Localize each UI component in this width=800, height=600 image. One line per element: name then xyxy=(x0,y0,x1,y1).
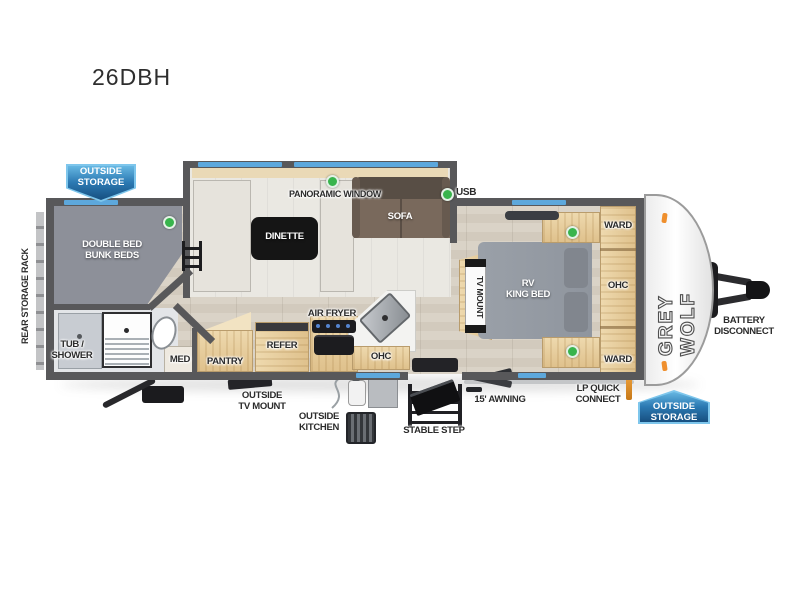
badge-face: OUTSIDE STORAGE xyxy=(640,392,708,422)
refer-label: REFER xyxy=(252,341,312,352)
battery-disconnect-label: BATTERY DISCONNECT xyxy=(702,316,786,338)
bedroom-ohc-label: OHC xyxy=(598,281,638,292)
pantry-label: PANTRY xyxy=(196,357,254,368)
outside-kitchen-panel xyxy=(368,376,398,408)
badge-front-line1: OUTSIDE xyxy=(653,402,695,413)
badge-rear-line2: STORAGE xyxy=(78,178,125,189)
cabinet-divider-1 xyxy=(600,248,636,251)
sofa-armrest-left xyxy=(352,177,360,238)
tv-mount-label: TV MOUNT xyxy=(467,268,484,326)
nightstand-top-usb xyxy=(566,226,579,239)
awning-foot xyxy=(466,387,482,392)
ward-top-label: WARD xyxy=(598,221,638,232)
kitchen-ohc-label: OHC xyxy=(351,352,411,363)
awning-label: 15' AWNING xyxy=(460,395,540,406)
bunk-ladder xyxy=(182,241,202,271)
dinette-bench-left xyxy=(193,180,251,292)
cabinet-divider-2 xyxy=(600,326,636,329)
outside-storage-badge-front: OUTSIDE STORAGE xyxy=(638,390,710,424)
outside-kitchen-line2: KITCHEN xyxy=(280,423,358,434)
nightstand-bottom-usb xyxy=(566,345,579,358)
ward-bottom-label: WARD xyxy=(598,355,638,366)
bunk-usb-indicator xyxy=(163,216,176,229)
bath-divider-wall xyxy=(54,304,150,310)
slide-window-left xyxy=(198,162,282,167)
lp-quick-connect-label: LP QUICK CONNECT xyxy=(558,384,638,406)
badge-face: OUTSIDE STORAGE xyxy=(68,166,134,200)
sofa-armrest-right xyxy=(442,177,450,238)
tub-shower-label-line2: SHOWER xyxy=(40,351,104,362)
outside-storage-badge-rear: OUTSIDE STORAGE xyxy=(66,164,136,202)
cable-line xyxy=(324,376,346,412)
hitch-coupler xyxy=(746,281,770,299)
dinette-label: DINETTE xyxy=(253,232,316,243)
water-jug xyxy=(348,380,366,406)
badge-rear-line1: OUTSIDE xyxy=(80,167,122,178)
outside-kitchen-label: OUTSIDE KITCHEN xyxy=(280,412,358,434)
panoramic-window-label: PANORAMIC WINDOW xyxy=(270,189,400,199)
grey-wolf-logo: GREY WOLF xyxy=(656,228,686,356)
badge-front-line2: STORAGE xyxy=(651,413,698,424)
bedroom-window-shade xyxy=(505,211,559,220)
entry-door-mat xyxy=(412,358,458,372)
usb-indicator xyxy=(441,188,454,201)
shower-texture xyxy=(105,338,149,365)
lp-line2: CONNECT xyxy=(558,395,638,406)
sink-faucet xyxy=(382,315,388,321)
bedroom-window xyxy=(512,200,566,205)
bottom-wall-left xyxy=(46,372,408,380)
shower-drain xyxy=(124,328,129,333)
stove-burner-2 xyxy=(326,324,330,328)
rear-entry-step xyxy=(142,386,184,403)
battery-disconnect-line2: DISCONNECT xyxy=(702,327,786,338)
rear-storage-rack-label: REAR STORAGE RACK xyxy=(20,246,34,346)
stove-burner-1 xyxy=(316,324,320,328)
page-title: 26DBH xyxy=(92,64,171,91)
panoramic-window-indicator xyxy=(326,175,339,188)
bedroom-bottom-window xyxy=(518,373,546,378)
tv-screen-cap-top xyxy=(465,259,486,267)
bunk-beds-label-line2: BUNK BEDS xyxy=(62,251,162,262)
slide-window-right xyxy=(294,162,438,167)
stable-step-label: STABLE STEP xyxy=(394,426,474,437)
king-bed-label-line2: KING BED xyxy=(488,290,568,301)
stove-burner-4 xyxy=(346,324,350,328)
air-fryer xyxy=(314,335,354,355)
bunk-beds-label: DOUBLE BED BUNK BEDS xyxy=(62,240,162,262)
king-bed-label: RV KING BED xyxy=(488,279,568,301)
bottom-wall-right xyxy=(462,372,648,380)
sofa-label: SOFA xyxy=(378,212,422,223)
air-fryer-label: AIR FRYER xyxy=(296,309,368,320)
refrigerator-top xyxy=(256,323,308,331)
stove-burner-3 xyxy=(336,324,340,328)
usb-label: USB xyxy=(456,187,486,199)
kitchen-door-window xyxy=(356,373,400,378)
floorplan-canvas: 26DBH REAR STORAGE RACK DOUBLE BED BUNK … xyxy=(0,0,800,600)
tv-screen-cap-bottom xyxy=(465,325,486,333)
tub-shower-label: TUB / SHOWER xyxy=(40,340,104,362)
outside-tv-mount-label: OUTSIDE TV MOUNT xyxy=(222,391,302,413)
